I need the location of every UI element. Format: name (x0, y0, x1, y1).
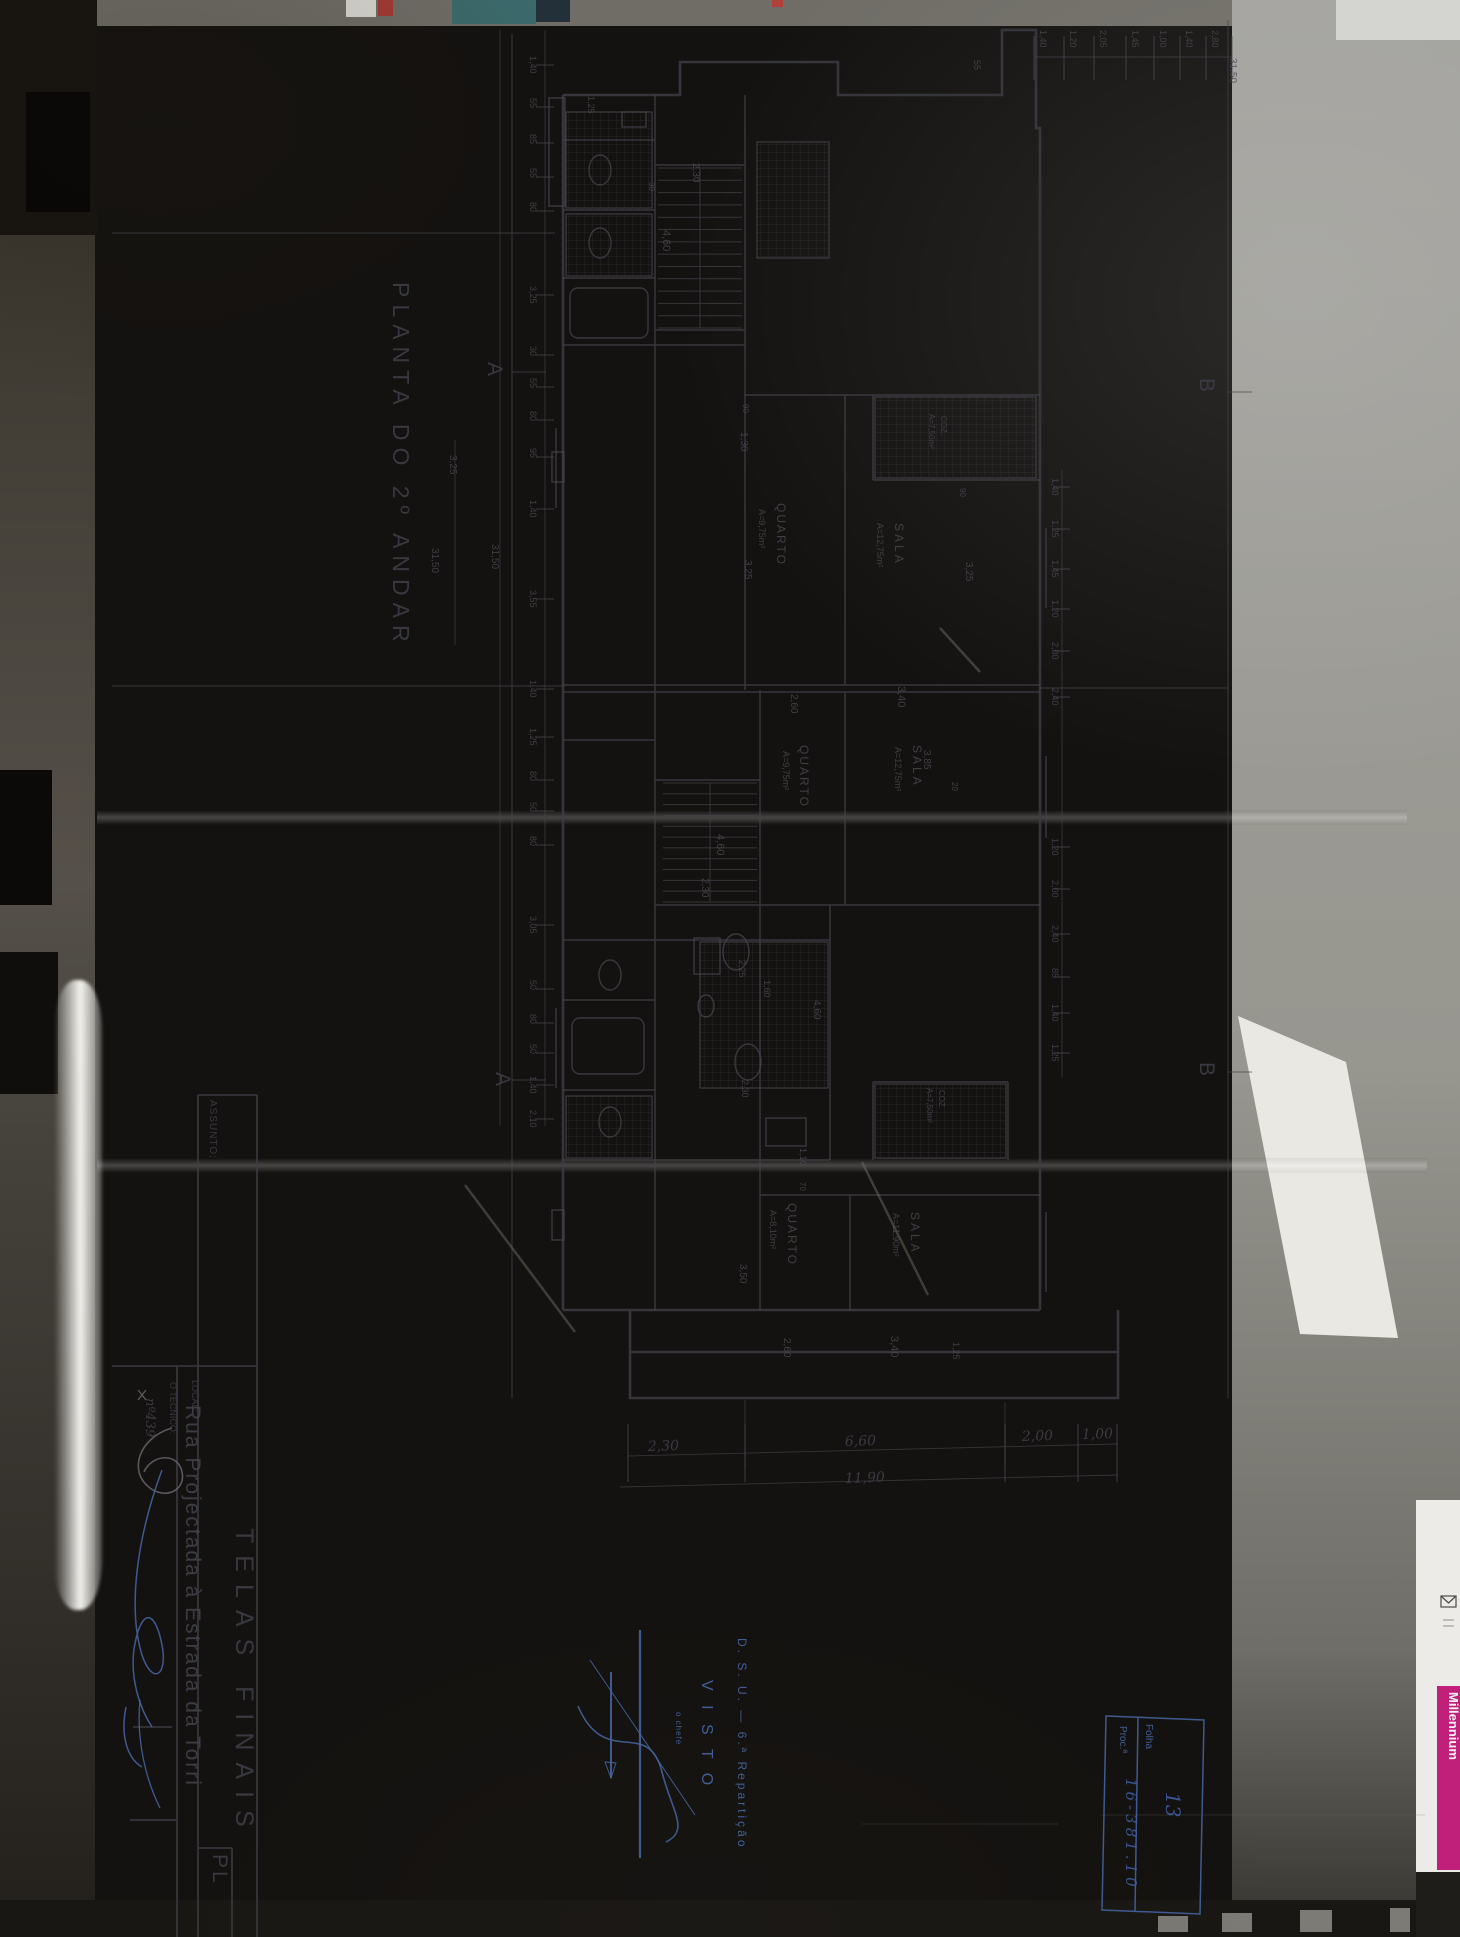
background-dark-patch (0, 952, 58, 1094)
background-dark-patch (0, 770, 52, 905)
background-keyboard-block (1390, 1908, 1410, 1932)
drawing-paper-sheet (0, 0, 1460, 1937)
background-object-red-small (772, 0, 783, 7)
background-white-sliver (1336, 0, 1460, 40)
background-keyboard-block (1158, 1916, 1188, 1932)
background-object-white (346, 0, 376, 17)
background-keyboard-block (1222, 1913, 1252, 1932)
brand-banner-magenta (1437, 1686, 1460, 1870)
paper-curled-edge-highlight (54, 980, 102, 1610)
background-dark-slot (26, 92, 90, 212)
background-keyboard-block (1300, 1910, 1332, 1932)
background-object-red (378, 0, 393, 16)
photo-of-floor-plan: { "meta": { "sheet_title": "PLANTA DO 2º… (0, 0, 1460, 1937)
